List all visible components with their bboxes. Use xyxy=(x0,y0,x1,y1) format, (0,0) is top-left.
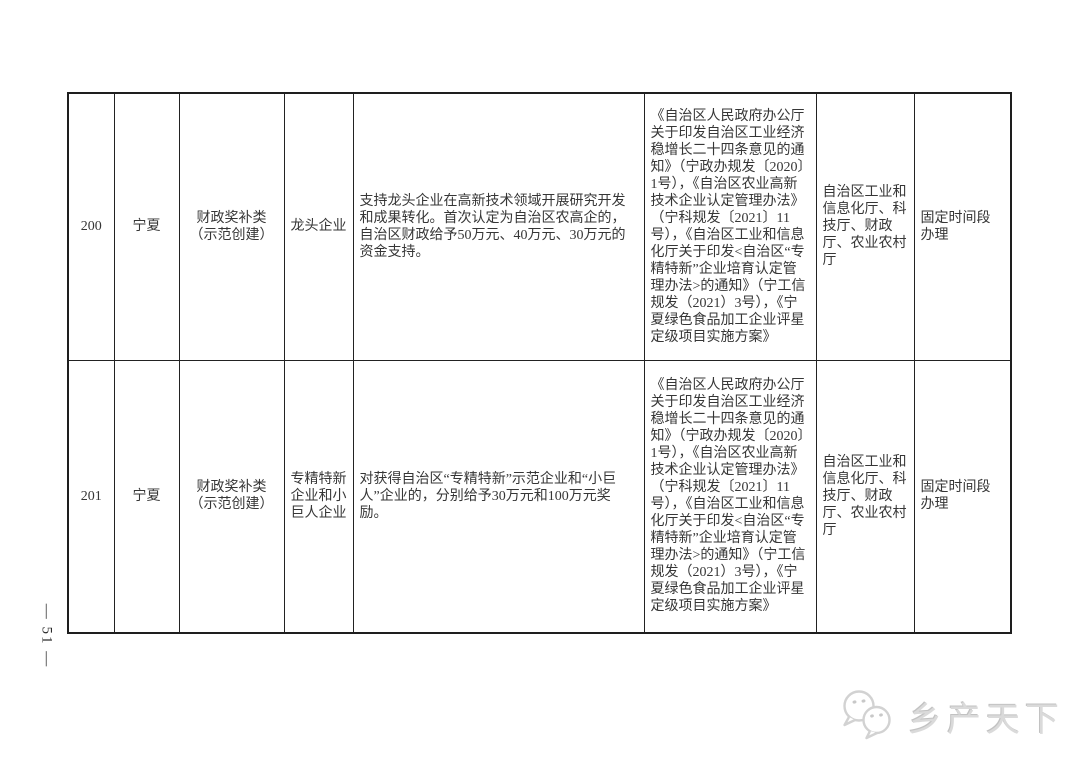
cell-number: 201 xyxy=(68,360,114,633)
cell-departments: 自治区工业和信息化厅、科技厅、财政厅、农业农村厅 xyxy=(816,93,914,360)
cell-handling-time: 固定时间段办理 xyxy=(914,360,1011,633)
chat-bubbles-icon xyxy=(838,686,896,747)
category-label: 财政奖补类 （示范创建） xyxy=(186,210,278,244)
cell-region: 宁夏 xyxy=(114,93,179,360)
category-label: 财政奖补类 （示范创建） xyxy=(186,479,278,513)
enterprise-type-label: 龙头企业 xyxy=(291,219,347,234)
document-page: — 51 — 200 宁夏 财政奖补类 （示范创建） 龙头企业 支持龙头企业在高… xyxy=(0,0,1080,763)
cell-category: 财政奖补类 （示范创建） xyxy=(179,360,284,633)
cell-region: 宁夏 xyxy=(114,360,179,633)
cell-enterprise-type: 专精特新企业和小巨人企业 xyxy=(284,360,353,633)
cell-enterprise-type: 龙头企业 xyxy=(284,93,353,360)
brand-name: 乡产天下 xyxy=(908,692,1064,741)
support-text: 对获得自治区“专精特新”示范企业和“小巨人”企业的，分别给予30万元和100万元… xyxy=(360,471,638,522)
table-row: 200 宁夏 财政奖补类 （示范创建） 龙头企业 支持龙头企业在高新技术领域开展… xyxy=(68,93,1011,360)
cell-number: 200 xyxy=(68,93,114,360)
enterprise-type-label: 专精特新企业和小巨人企业 xyxy=(291,472,347,521)
cell-support-content: 支持龙头企业在高新技术领域开展研究开发和成果转化。首次认定为自治区农高企的，自治… xyxy=(353,93,644,360)
cell-policy-basis: 《自治区人民政府办公厅关于印发自治区工业经济稳增长二十四条意见的通知》（宁政办规… xyxy=(644,360,816,633)
page-number: — 51 — xyxy=(38,604,55,669)
cell-policy-basis: 《自治区人民政府办公厅关于印发自治区工业经济稳增长二十四条意见的通知》（宁政办规… xyxy=(644,93,816,360)
row-id: 201 xyxy=(81,489,102,504)
policy-basis-text: 《自治区人民政府办公厅关于印发自治区工业经济稳增长二十四条意见的通知》（宁政办规… xyxy=(651,377,810,615)
handling-text: 固定时间段办理 xyxy=(921,210,1005,244)
policy-basis-text: 《自治区人民政府办公厅关于印发自治区工业经济稳增长二十四条意见的通知》（宁政办规… xyxy=(651,108,810,346)
region-label: 宁夏 xyxy=(133,489,161,504)
departments-text: 自治区工业和信息化厅、科技厅、财政厅、农业农村厅 xyxy=(823,454,908,539)
row-id: 200 xyxy=(81,219,102,234)
cell-support-content: 对获得自治区“专精特新”示范企业和“小巨人”企业的，分别给予30万元和100万元… xyxy=(353,360,644,633)
support-text: 支持龙头企业在高新技术领域开展研究开发和成果转化。首次认定为自治区农高企的，自治… xyxy=(360,193,638,261)
cell-departments: 自治区工业和信息化厅、科技厅、财政厅、农业农村厅 xyxy=(816,360,914,633)
departments-text: 自治区工业和信息化厅、科技厅、财政厅、农业农村厅 xyxy=(823,184,908,269)
brand-watermark: 乡产天下 xyxy=(838,686,1064,747)
table-row: 201 宁夏 财政奖补类 （示范创建） 专精特新企业和小巨人企业 对获得自治区“… xyxy=(68,360,1011,633)
policy-table: 200 宁夏 财政奖补类 （示范创建） 龙头企业 支持龙头企业在高新技术领域开展… xyxy=(67,92,1012,634)
cell-category: 财政奖补类 （示范创建） xyxy=(179,93,284,360)
cell-handling-time: 固定时间段办理 xyxy=(914,93,1011,360)
region-label: 宁夏 xyxy=(133,219,161,234)
handling-text: 固定时间段办理 xyxy=(921,479,1005,513)
